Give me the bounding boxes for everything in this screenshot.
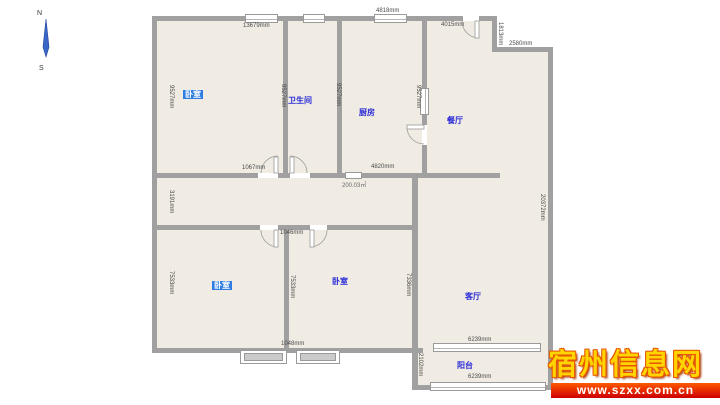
room-label-bedroom-left[interactable]: 卧室 [212, 281, 232, 290]
door-swing-arcs [0, 0, 720, 405]
dim-hall-left-wall: 3191mm [167, 190, 174, 213]
room-label-kitchen[interactable]: 厨房 [359, 108, 375, 117]
dim-balcony-left-wall: 2102mm [416, 353, 423, 376]
dim-bedroom-right-wall: 7336mm [404, 273, 411, 296]
dim-bedroom-top-left-wall: 9527mm [167, 85, 174, 108]
dim-bedroom-mid-wall: 7533mm [288, 275, 295, 298]
dim-bedroom-doors: 1046mm [280, 230, 303, 237]
watermark-site-url: www.szxx.com.cn [551, 383, 720, 398]
room-label-living[interactable]: 客厅 [465, 292, 481, 301]
dim-dining-top-wall: 4015mm [441, 22, 464, 29]
dim-step-height: 1813mm [496, 22, 503, 45]
room-label-bedroom-top[interactable]: 卧室 [183, 90, 203, 99]
dim-bedroom-left-wall: 7533mm [167, 271, 174, 294]
dim-top-wall: 13679mm [243, 23, 270, 30]
room-label-bedroom-right[interactable]: 卧室 [332, 277, 348, 286]
room-label-bathroom[interactable]: 卫生间 [288, 96, 312, 105]
dim-bottom-wall-segment: 1048mm [281, 341, 304, 348]
room-label-dining[interactable]: 餐厅 [447, 116, 463, 125]
dim-kitchen-right-wall: 9527mm [414, 85, 421, 108]
dim-bathroom-left-wall: 9527mm [279, 84, 286, 107]
floor-plan-canvas: N S [0, 0, 720, 405]
room-label-balcony[interactable]: 阳台 [457, 361, 473, 370]
dim-kitchen-top-wall: 4818mm [376, 8, 399, 15]
dim-kitchen-bottom-wall: 4820mm [371, 164, 394, 171]
watermark-site-name: 宿州信息网 [548, 347, 720, 381]
total-area-label: 200.03㎡ [342, 180, 366, 189]
dim-right-wall: 20372mm [538, 194, 545, 221]
dim-step-width: 2580mm [509, 41, 532, 48]
dim-living-window: 6239mm [468, 337, 491, 344]
dim-bathroom-right-wall: 9527mm [334, 83, 341, 106]
dim-bedroom-top-door: 1067mm [242, 165, 265, 172]
dim-balcony-window: 6239mm [468, 374, 491, 381]
